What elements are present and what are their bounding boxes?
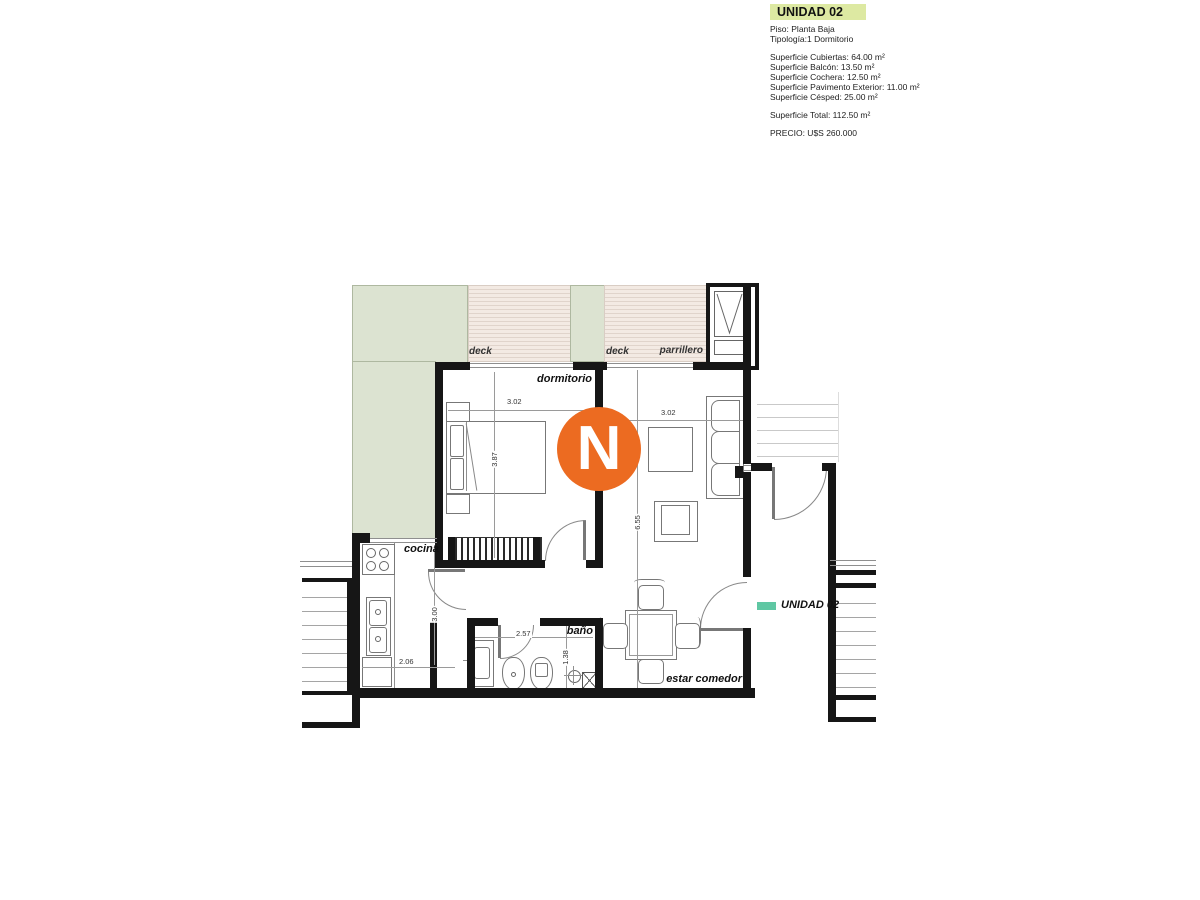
window-line	[744, 470, 751, 471]
dim-cocina-width: 2.06	[398, 657, 415, 666]
wall-dorm-bottom-right	[586, 560, 603, 568]
pillow	[450, 458, 464, 490]
dim-line	[362, 667, 455, 668]
pillow	[450, 425, 464, 457]
entry-arrow-label: UNIDAD 02	[781, 599, 839, 611]
superficie-balcon: Superficie Balcón: 13.50 m²	[770, 62, 923, 72]
cesped-area-top	[352, 285, 468, 363]
chair-back-arc	[634, 579, 665, 586]
drain-cross-v	[573, 666, 574, 685]
wall-kitchen-corner	[352, 533, 370, 543]
wall-left-stairs-top	[302, 578, 353, 582]
dim-living-depth: 6.55	[633, 514, 642, 531]
dim-line	[448, 410, 591, 411]
shower-drain	[568, 670, 581, 683]
armchair-seat	[661, 505, 690, 535]
lot-line	[300, 561, 352, 562]
bidet-tap	[511, 672, 516, 677]
sofa-cushion	[711, 400, 740, 432]
dim-line	[475, 637, 593, 638]
wall-corridor-top-left	[751, 463, 772, 471]
dim-dorm-width: 3.02	[506, 397, 523, 406]
wall-unit-right-upper	[743, 283, 751, 464]
coffee-table	[648, 427, 693, 472]
dim-living-width: 3.02	[660, 408, 677, 417]
wall-step-left-h	[302, 722, 360, 728]
window-line	[607, 363, 693, 364]
sink-drain	[375, 636, 381, 642]
wall-kitchen-left	[352, 533, 360, 698]
wall-right-stub-1	[836, 570, 876, 575]
superficie-pavimento: Superficie Pavimento Exterior: 11.00 m²	[770, 82, 923, 92]
burner	[366, 548, 376, 558]
nightstand	[446, 494, 470, 514]
dim-cocina-depth: 3.00	[430, 606, 439, 623]
sink-drain	[375, 609, 381, 615]
sofa-cushion	[711, 431, 740, 464]
wall-left-stairs-bottom	[302, 691, 353, 695]
window-line	[744, 465, 751, 466]
piso-line: Piso: Planta Baja	[770, 24, 923, 34]
dining-chair	[603, 623, 628, 649]
lot-line	[300, 566, 352, 567]
deck-left-label: deck	[469, 346, 492, 357]
dorm-door-arc	[545, 520, 586, 561]
north-badge: N	[557, 407, 641, 491]
window-line	[470, 367, 573, 368]
closet-end	[448, 537, 455, 560]
burner	[366, 561, 376, 571]
parrillero-counter	[714, 340, 745, 355]
left-stairs	[302, 584, 347, 691]
lot-line	[830, 560, 876, 561]
lot-line	[830, 565, 876, 566]
right-stairs	[836, 590, 876, 695]
upper-right-stairs	[757, 392, 839, 462]
cocina-label: cocina	[404, 543, 439, 555]
north-letter: N	[577, 414, 622, 483]
dim-bano-width: 2.57	[515, 629, 532, 638]
precio-line: PRECIO: U$S 260.000	[770, 128, 923, 138]
dim-dorm-depth: 3.87	[490, 451, 499, 468]
toilet-tank	[535, 663, 548, 677]
floor-plan-page: UNIDAD 02 Piso: Planta Baja Tipología:1 …	[0, 0, 1200, 900]
wall-left-stairs-right	[347, 578, 353, 695]
wall-bath-left	[467, 618, 475, 698]
superficie-cesped: Superficie Césped: 25.00 m²	[770, 92, 923, 102]
superficie-cochera: Superficie Cochera: 12.50 m²	[770, 72, 923, 82]
parrillero-vent-icon	[714, 291, 745, 337]
dim-line	[434, 545, 435, 665]
vanity-basin	[474, 647, 490, 679]
dining-table	[625, 610, 677, 660]
window-line	[370, 538, 437, 539]
entry-door-arc	[700, 582, 747, 629]
kitchen-cabinet	[362, 657, 392, 687]
dim-bano-depth: 1.38	[561, 649, 570, 666]
window-line	[607, 367, 693, 368]
unit-info-panel: UNIDAD 02 Piso: Planta Baja Tipología:1 …	[770, 4, 970, 138]
burner	[379, 561, 389, 571]
chair-back-arc	[694, 617, 701, 648]
entry-arrow-body	[757, 602, 776, 610]
wall-dorm-bottom	[435, 560, 545, 568]
bano-label: baño	[551, 625, 593, 637]
unit-title-highlight: UNIDAD 02	[770, 4, 866, 20]
superficie-cubiertas: Superficie Cubiertas: 64.00 m²	[770, 52, 923, 62]
closet-end	[533, 537, 540, 560]
wall-right-step	[836, 717, 876, 722]
cesped-strip-mid	[570, 285, 605, 362]
wall-corridor-right	[828, 463, 836, 722]
wall-bottom	[352, 688, 755, 698]
wall-right-stairs-bottom	[836, 695, 876, 700]
wall-unit-right-mid	[743, 472, 751, 577]
dormitorio-label: dormitorio	[500, 373, 592, 385]
dining-chair	[638, 585, 664, 610]
closet	[448, 537, 542, 562]
window-line	[470, 363, 573, 364]
tipologia-line: Tipología:1 Dormitorio	[770, 34, 923, 44]
superficie-total: Superficie Total: 112.50 m²	[770, 110, 923, 120]
wall-right-stub-2	[836, 583, 876, 588]
corridor-door-arc	[774, 467, 827, 520]
wall-bath-right	[595, 618, 603, 698]
deck-right-label: deck	[606, 346, 629, 357]
burner	[379, 548, 389, 558]
parrillero-label: parrillero	[645, 345, 703, 356]
nightstand	[446, 402, 470, 422]
cesped-area-left	[352, 361, 436, 539]
estar-comedor-label: estar comedor	[650, 673, 742, 685]
wall-window-stub	[735, 466, 743, 478]
